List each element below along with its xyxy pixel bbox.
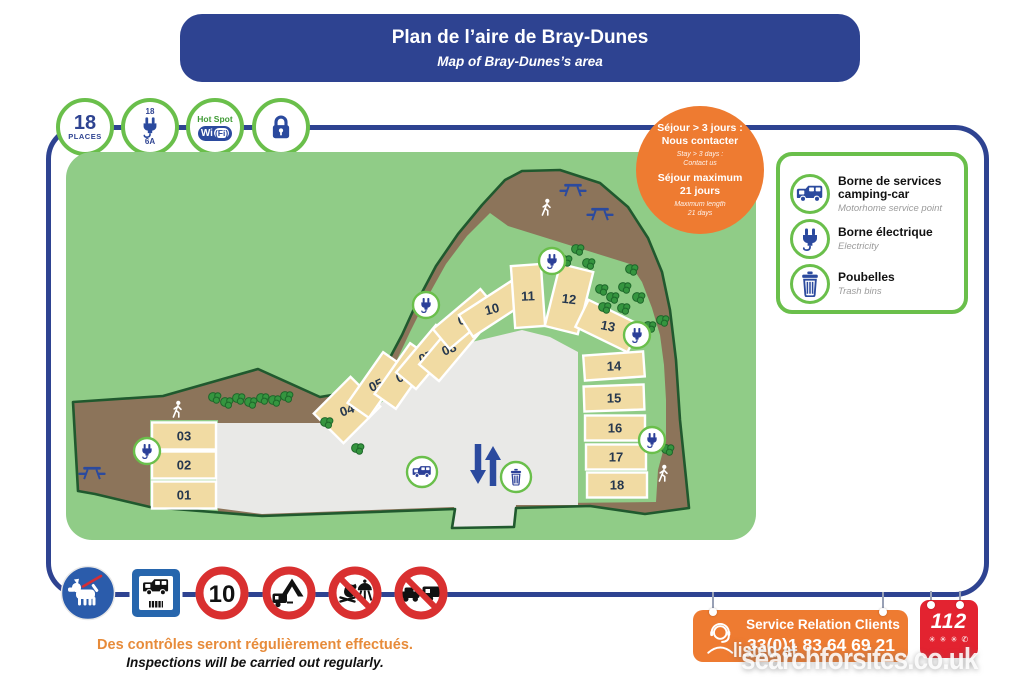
- customer-service-title: Service Relation Clients: [743, 617, 903, 632]
- legend-electricity-fr: Borne électrique: [838, 226, 933, 239]
- parking-spot-03: 03: [152, 423, 216, 450]
- hotspot-label: Hot Spot: [197, 114, 232, 124]
- customer-service-phone: 33(0)1 83 64 69 21: [735, 635, 907, 656]
- amp-top-label: 18: [146, 108, 155, 116]
- parking-spot-label: 18: [610, 478, 624, 493]
- places-label: PLACES: [68, 132, 101, 141]
- tag-pin: [879, 608, 887, 616]
- parking-spot-label: 14: [607, 358, 623, 373]
- title-en: Map of Bray-Dunes’s area: [180, 54, 860, 69]
- inspection-notice-en: Inspections will be carried out regularl…: [55, 655, 455, 670]
- stay-fr-1: Séjour > 3 jours :: [657, 122, 742, 135]
- legend-item-trash: Poubelles Trash bins: [790, 264, 895, 304]
- parking-spot-label: 17: [609, 450, 623, 465]
- parking-spot-label: 02: [177, 458, 191, 473]
- sign-dogs-on-leash: [60, 565, 116, 621]
- trash-bin-icon: [511, 469, 521, 485]
- sign-no-fires-bbq: [327, 565, 383, 621]
- barrier-badge: [252, 98, 310, 156]
- electricity-badge: 18 6A: [121, 98, 179, 156]
- legend-service-fr: Borne de services camping-car: [838, 175, 964, 201]
- parking-spot-label: 13: [599, 317, 616, 335]
- wifi-icon: Wi (Fi): [198, 126, 232, 141]
- stay-en-4: 21 days: [688, 210, 713, 217]
- title-banner: Plan de l’aire de Bray-Dunes Map of Bray…: [180, 14, 860, 82]
- stay-rules-badge: Séjour > 3 jours : Nous contacter Stay >…: [636, 106, 764, 234]
- parking-spot-11: 11: [511, 264, 545, 328]
- emergency-number: 112: [920, 610, 978, 634]
- stay-en-1: Stay > 3 days :: [677, 151, 724, 158]
- wifi-wi-text: Wi: [201, 128, 213, 139]
- parking-spot-label: 16: [608, 421, 622, 436]
- parking-spot-16: 16: [585, 416, 645, 441]
- parking-spot-15: 15: [584, 384, 645, 411]
- legend: Borne de services camping-car Motorhome …: [776, 152, 968, 314]
- parking-spot-01: 01: [152, 482, 216, 509]
- tag-pin: [927, 601, 935, 609]
- parking-spot-label: 01: [177, 488, 191, 503]
- legend-trash-fr: Poubelles: [838, 271, 895, 284]
- stay-fr-4: 21 jours: [680, 185, 720, 198]
- stay-fr-3: Séjour maximum: [658, 172, 743, 185]
- poster: Plan de l’aire de Bray-Dunes Map of Bray…: [0, 0, 1024, 681]
- tag-pin: [956, 601, 964, 609]
- headset-operator-icon: [703, 619, 739, 655]
- parking-spot-02: 02: [152, 452, 216, 479]
- legend-electricity-en: Electricity: [838, 241, 933, 252]
- parking-spot-14: 14: [583, 351, 645, 380]
- electric-plug-icon: [790, 219, 830, 259]
- motorhome-service-icon: [790, 174, 830, 214]
- inspection-notice-fr: Des contrôles seront régulièrement effec…: [55, 637, 455, 653]
- parking-spot-18: 18: [587, 473, 647, 498]
- legend-item-service: Borne de services camping-car Motorhome …: [790, 174, 964, 214]
- sign-no-camping: [261, 565, 317, 621]
- electric-plug-icon: [139, 116, 161, 138]
- stay-en-2: Contact us: [683, 160, 716, 167]
- legend-service-en: Motorhome service point: [838, 203, 964, 214]
- trash-bin-icon: [790, 264, 830, 304]
- parking-spot-label: 03: [177, 429, 191, 444]
- parking-spot-label: 11: [521, 288, 535, 303]
- legend-item-electricity: Borne électrique Electricity: [790, 219, 933, 259]
- amp-bottom-label: 6A: [145, 138, 155, 146]
- wifi-fi-text: (Fi): [214, 128, 229, 138]
- padlock-icon: [266, 112, 296, 142]
- stay-fr-2: Nous contacter: [662, 135, 738, 148]
- wifi-badge: Hot Spot Wi (Fi): [186, 98, 244, 156]
- sign-motorhome-service-area: [129, 566, 183, 620]
- tag-pin: [709, 608, 717, 616]
- sos-phone-icons: ✳ ✳ ✳ ✆: [920, 635, 978, 644]
- places-badge: 18 PLACES: [56, 98, 114, 156]
- parking-spot-label: 15: [607, 390, 622, 405]
- customer-service-tag: Service Relation Clients 33(0)1 83 64 69…: [693, 610, 908, 662]
- parking-spot-17: 17: [586, 445, 646, 470]
- sign-speed-limit: 10: [194, 565, 250, 621]
- inspection-notice: Des contrôles seront régulièrement effec…: [55, 637, 455, 670]
- speed-limit-value: 10: [209, 581, 236, 608]
- stay-en-3: Maximum length: [674, 201, 725, 208]
- sign-no-caravans: [393, 565, 449, 621]
- parking-spot-label: 12: [561, 291, 577, 307]
- title-fr: Plan de l’aire de Bray-Dunes: [180, 27, 860, 49]
- places-number: 18: [74, 114, 96, 132]
- legend-trash-en: Trash bins: [838, 286, 895, 297]
